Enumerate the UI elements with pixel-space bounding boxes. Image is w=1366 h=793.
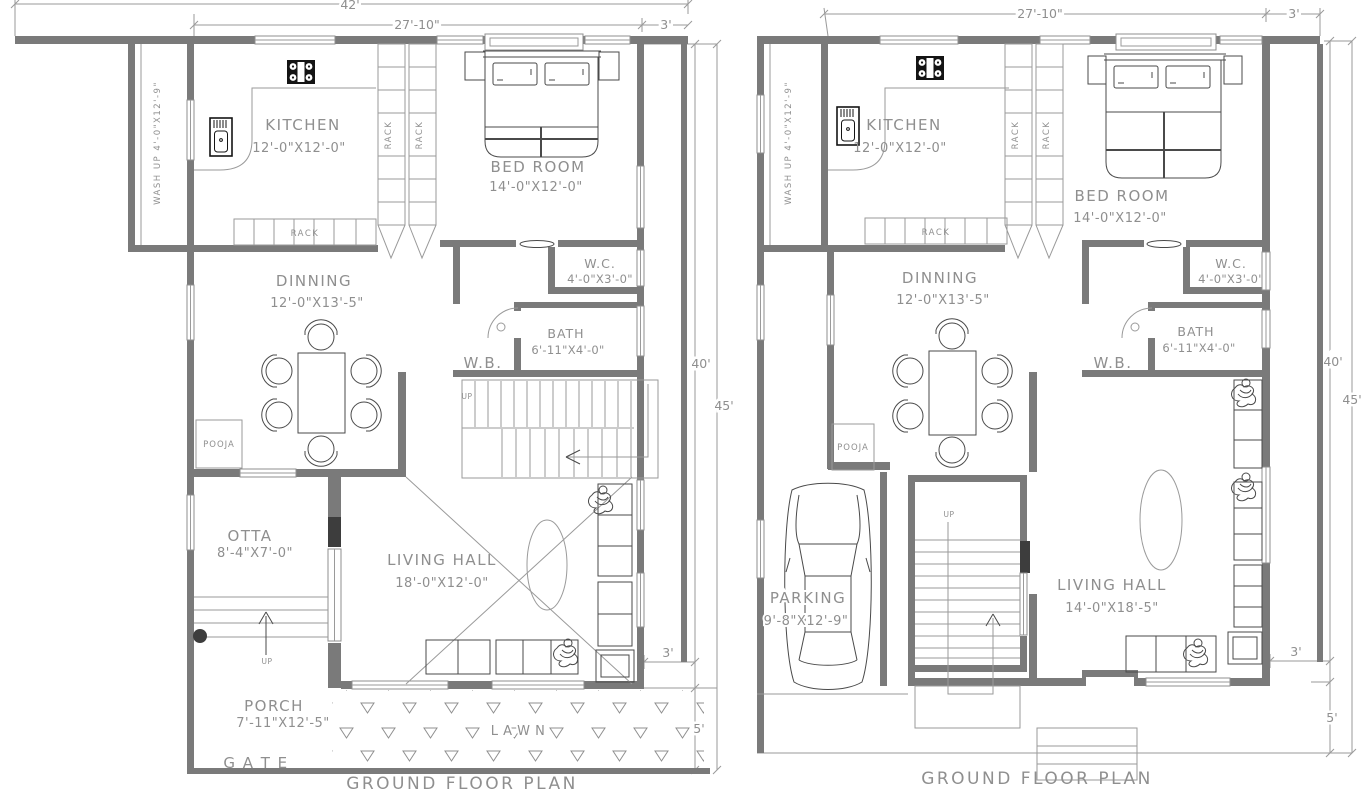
sink-icon [210, 118, 232, 156]
right-dim-front-setback: 5' [1326, 710, 1337, 725]
left-otta-label: OTTA [228, 527, 273, 545]
left-dim-side-top: 3' [660, 17, 671, 32]
stove-icon [916, 56, 944, 80]
porch-column [193, 629, 207, 643]
left-bedroom-label: BED ROOM [490, 158, 585, 176]
right-wash-label: WASH UP 4'-0"X12'-9" [784, 81, 794, 205]
left-wash-label: WASH UP 4'-0"X12'-9" [153, 81, 163, 205]
left-kitchen-label: KITCHEN [265, 116, 341, 134]
floor-plan-canvas: 42' 27'-10" 3' 40' 45' 3' 5' [0, 0, 1366, 793]
right-dim-depth-inner: 40' [1323, 354, 1342, 369]
left-stairs-up-label: UP [461, 392, 472, 401]
left-porch-label: PORCH [244, 697, 304, 715]
right-wc-label: W.C. [1215, 256, 1247, 271]
right-bedroom-label: BED ROOM [1074, 187, 1169, 205]
left-living-size: 18'-0"X12'-0" [395, 576, 489, 591]
person-sketch [1232, 379, 1256, 407]
right-plan: 27'-10" 3' 40' 45' 3' 5' [757, 6, 1362, 789]
person-sketch [554, 639, 578, 667]
entry-steps [757, 686, 1137, 780]
right-rack-cab2-label: RACK [1042, 121, 1052, 150]
left-rack-cab1-label: RACK [384, 121, 394, 150]
otta-steps [194, 597, 328, 655]
right-living-rug [1140, 470, 1182, 570]
bed-icon [465, 51, 619, 157]
left-dim-inner-width: 27'-10" [394, 17, 440, 32]
floor-plan-sheet: 42' 27'-10" 3' 40' 45' 3' 5' [0, 0, 1366, 793]
right-pooja-label: POOJA [837, 443, 869, 453]
left-dim-total-width: 42' [340, 0, 359, 12]
stove-icon [287, 60, 315, 84]
left-bath-label: BATH [547, 326, 584, 341]
right-kitchen-label: KITCHEN [866, 116, 942, 134]
left-rack-cabinets [378, 44, 436, 258]
right-rack-shelf-label: RACK [922, 228, 951, 238]
right-dim-side-bottom: 3' [1290, 644, 1301, 659]
bath-door-knob [497, 323, 505, 331]
left-wc-size: 4'-0"X3'-0" [567, 272, 633, 286]
left-bedroom-size: 14'-0"X12'-0" [489, 180, 583, 195]
left-wc-label: W.C. [584, 256, 616, 271]
right-sofas [1126, 380, 1262, 672]
left-kitchen-size: 12'-0"X12'-0" [252, 141, 346, 156]
left-lawn-label: L A W N [491, 724, 546, 739]
bedroom-door-mark [520, 241, 554, 248]
left-gate-label: G A T E [223, 754, 288, 772]
person-sketch [589, 486, 613, 514]
dining-set [893, 319, 1013, 468]
dining-set [262, 320, 382, 467]
left-plan: 42' 27'-10" 3' 40' 45' 3' 5' [11, 0, 734, 793]
left-rack-shelf-label: RACK [291, 229, 320, 239]
right-dim-inner-width: 27'-10" [1017, 6, 1063, 21]
right-dinning-label: DINNING [902, 269, 978, 287]
right-stairs-up-label: UP [943, 510, 954, 519]
right-bedroom-size: 14'-0"X12'-0" [1073, 211, 1167, 226]
right-living-door-jamb [1020, 541, 1030, 573]
person-sketch [1184, 639, 1208, 667]
left-bath-size: 6'-11"X4'-0" [531, 343, 604, 357]
right-rack-cabinets [1005, 44, 1063, 258]
left-dim-side-bottom: 3' [662, 645, 673, 660]
left-living-label: LIVING HALL [387, 551, 497, 569]
right-living-size: 14'-0"X18'-5" [1065, 601, 1159, 616]
left-wb-label: W.B. [464, 354, 503, 372]
right-living-label: LIVING HALL [1057, 576, 1167, 594]
car-icon [785, 483, 872, 689]
right-kitchen-size: 12'-0"X12'-0" [853, 141, 947, 156]
right-parking-label: PARKING [770, 589, 846, 607]
right-rack-cab1-label: RACK [1011, 121, 1021, 150]
left-dim-depth-inner: 40' [691, 356, 710, 371]
left-porch-size: 7'-11"X12'-5" [236, 716, 330, 731]
right-wc-size: 4'-0"X3'-0" [1198, 272, 1264, 286]
person-sketch [1232, 473, 1256, 501]
right-plan-title: GROUND FLOOR PLAN [921, 769, 1153, 789]
right-bath-size: 6'-11"X4'-0" [1162, 341, 1235, 355]
bedroom-door-mark [1147, 241, 1181, 248]
left-stairs [462, 380, 658, 478]
right-wb-label: W.B. [1094, 354, 1133, 372]
left-living-door-jamb [328, 517, 341, 547]
left-plan-title: GROUND FLOOR PLAN [346, 774, 578, 793]
left-walls [15, 36, 710, 774]
sink-icon [837, 107, 859, 145]
right-bath-label: BATH [1177, 324, 1214, 339]
bed-icon [1088, 54, 1242, 178]
left-otta-size: 8'-4"X7'-0" [217, 546, 293, 561]
left-rack-cab2-label: RACK [415, 121, 425, 150]
bath-door-knob [1131, 323, 1139, 331]
right-dim-depth-total: 45' [1342, 392, 1361, 407]
left-dinning-size: 12'-0"X13'-5" [270, 296, 364, 311]
left-dim-depth-total: 45' [714, 398, 733, 413]
right-parking-size: 9'-8"X12'-9" [764, 614, 849, 629]
right-dinning-size: 12'-0"X13'-5" [896, 293, 990, 308]
left-dinning-label: DINNING [276, 272, 352, 290]
otta-up-label: UP [261, 657, 272, 666]
left-pooja-label: POOJA [203, 440, 235, 450]
right-dim-side-top: 3' [1288, 6, 1299, 21]
